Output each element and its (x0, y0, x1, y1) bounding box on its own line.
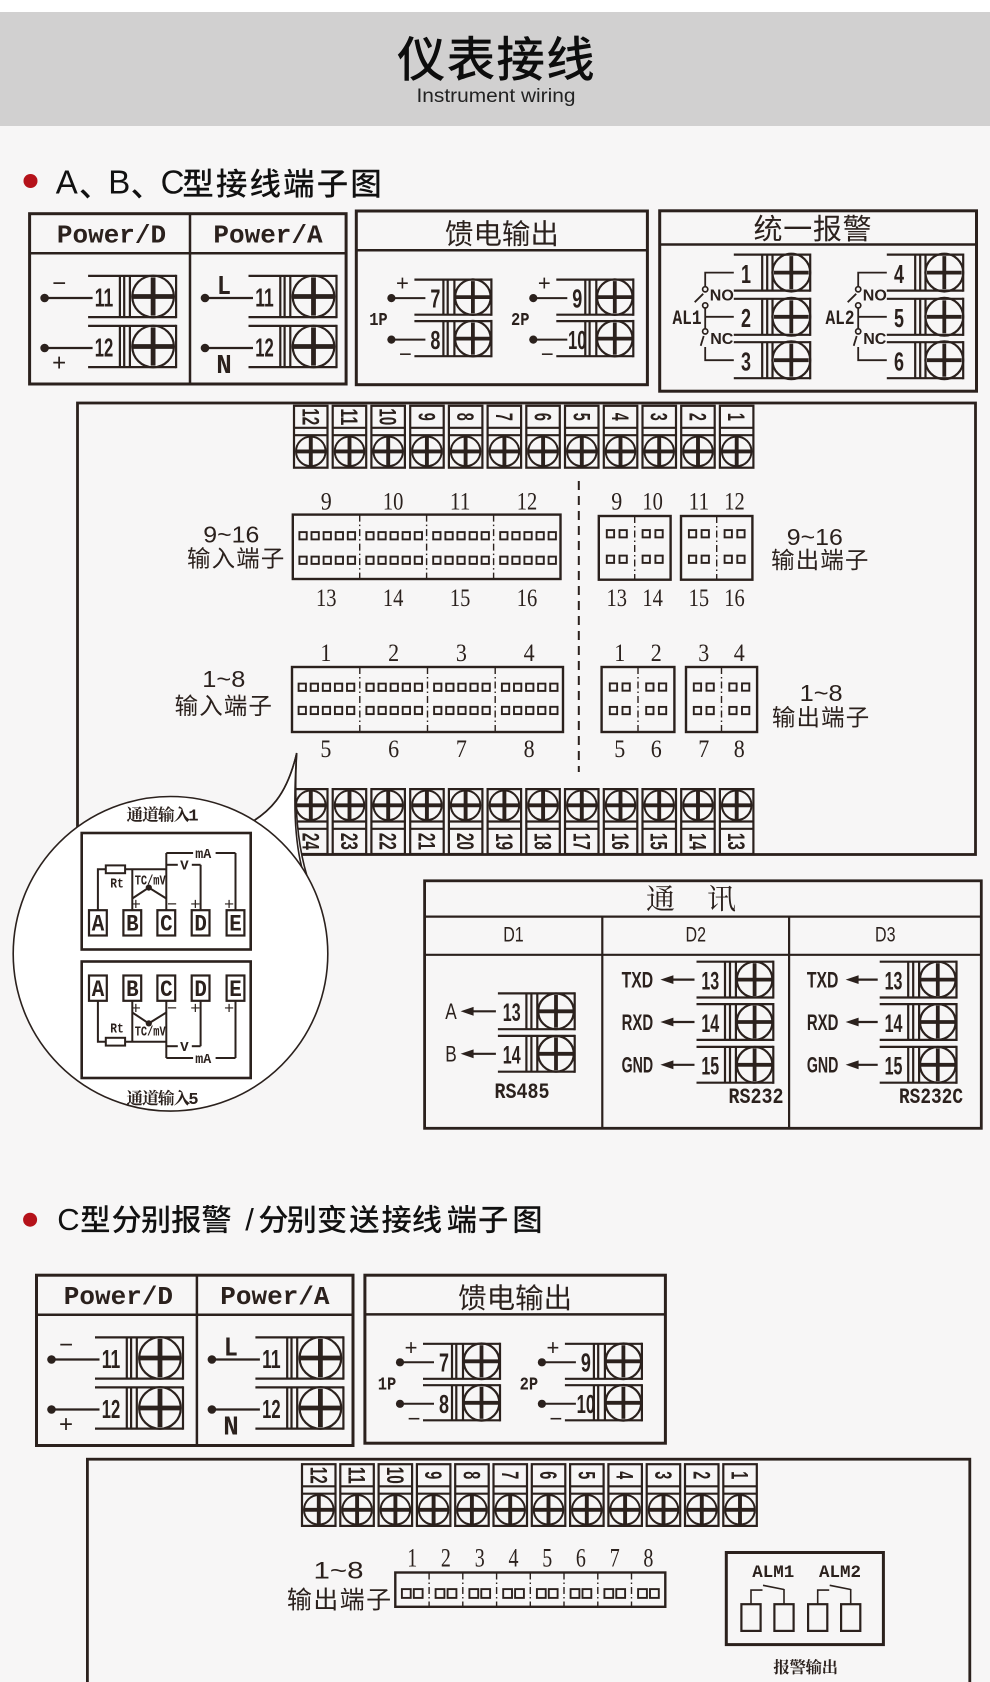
svg-text:15: 15 (450, 585, 471, 612)
svg-text:10: 10 (642, 488, 663, 515)
svg-text:8: 8 (451, 413, 478, 421)
svg-text:5: 5 (542, 1543, 552, 1572)
svg-text:2: 2 (388, 640, 399, 667)
svg-text:16: 16 (517, 585, 538, 612)
svg-text:3: 3 (649, 1471, 676, 1479)
svg-text:12: 12 (517, 488, 538, 515)
svg-text:4: 4 (606, 413, 633, 421)
svg-text:12: 12 (304, 1467, 331, 1484)
svg-text:11: 11 (689, 488, 710, 515)
svg-text:−: − (549, 1406, 562, 1431)
svg-text:TXD: TXD (807, 967, 839, 992)
svg-text:Rt: Rt (110, 1023, 124, 1038)
svg-text:12: 12 (262, 1394, 281, 1424)
svg-text:C: C (160, 912, 173, 938)
svg-text:10: 10 (374, 408, 401, 425)
svg-text:6: 6 (534, 1471, 561, 1479)
svg-text:1: 1 (188, 807, 198, 826)
svg-text:7: 7 (430, 283, 440, 313)
svg-text:6: 6 (388, 736, 399, 763)
svg-text:11: 11 (335, 408, 362, 425)
svg-text:−: − (167, 894, 177, 913)
svg-text:1P: 1P (369, 311, 388, 331)
svg-text:C: C (161, 163, 185, 200)
svg-text:8: 8 (458, 1471, 485, 1479)
svg-text:10: 10 (577, 1389, 596, 1419)
svg-text:11: 11 (262, 1344, 281, 1374)
svg-text:10: 10 (381, 1467, 408, 1484)
svg-text:4: 4 (611, 1471, 638, 1479)
svg-text:14: 14 (701, 1010, 719, 1038)
svg-text:C: C (57, 1202, 79, 1237)
svg-text:13: 13 (607, 585, 628, 612)
svg-text:15: 15 (645, 833, 672, 850)
svg-text:14: 14 (383, 585, 404, 612)
svg-text:V: V (180, 859, 189, 875)
svg-text:14: 14 (683, 833, 710, 850)
svg-text:NO: NO (863, 288, 887, 305)
svg-text:+: + (131, 894, 141, 913)
svg-text:Power/A: Power/A (213, 221, 323, 251)
svg-text:1P: 1P (378, 1375, 397, 1395)
svg-text:A: A (56, 163, 78, 200)
svg-text:12: 12 (255, 333, 274, 363)
svg-text:TC/mV: TC/mV (135, 1026, 167, 1041)
svg-text:−: − (59, 1331, 73, 1358)
svg-text:9: 9 (412, 413, 439, 421)
svg-text:1: 1 (320, 640, 331, 667)
svg-text:−: − (399, 342, 412, 367)
svg-text:12: 12 (102, 1394, 121, 1424)
svg-text:12: 12 (724, 488, 745, 515)
svg-text:10: 10 (383, 488, 404, 515)
svg-text:4: 4 (734, 640, 745, 667)
svg-text:2: 2 (683, 413, 710, 421)
svg-text:1: 1 (741, 259, 751, 289)
svg-text:13: 13 (722, 833, 749, 850)
svg-text:21: 21 (412, 833, 439, 850)
svg-text:15: 15 (701, 1053, 719, 1081)
svg-text:+: + (224, 998, 234, 1017)
svg-text:5: 5 (894, 303, 904, 333)
svg-text:+: + (131, 998, 141, 1017)
svg-text:9: 9 (581, 1348, 591, 1378)
svg-text:1: 1 (722, 413, 749, 421)
svg-text:1: 1 (614, 640, 625, 667)
svg-text:4: 4 (509, 1543, 519, 1572)
svg-text:7: 7 (456, 736, 467, 763)
svg-text:+: + (396, 271, 409, 296)
svg-text:9: 9 (611, 488, 622, 515)
svg-text:6: 6 (576, 1543, 586, 1572)
svg-text:15: 15 (885, 1053, 903, 1081)
svg-text:16: 16 (724, 585, 745, 612)
svg-text:A: A (445, 999, 457, 1024)
svg-text:9: 9 (572, 283, 582, 313)
svg-text:3: 3 (475, 1543, 485, 1572)
svg-text:+: + (538, 271, 551, 296)
svg-text:+: + (59, 1411, 73, 1438)
svg-text:19: 19 (490, 833, 517, 850)
svg-text:4: 4 (524, 640, 535, 667)
svg-text:RS232C: RS232C (899, 1085, 963, 1110)
svg-text:14: 14 (503, 1042, 521, 1070)
svg-text:L: L (224, 1334, 238, 1364)
svg-text:A: A (92, 977, 105, 1003)
svg-text:+: + (546, 1335, 559, 1360)
svg-text:9: 9 (321, 488, 332, 515)
svg-text:5: 5 (320, 736, 331, 763)
svg-text:−: − (408, 1406, 421, 1431)
svg-text:5: 5 (572, 1471, 599, 1479)
svg-text:7: 7 (610, 1543, 620, 1572)
svg-text:RS232: RS232 (729, 1085, 784, 1110)
svg-text:22: 22 (374, 833, 401, 850)
svg-text:10: 10 (568, 325, 587, 355)
svg-text:2: 2 (687, 1471, 714, 1479)
svg-text:3: 3 (456, 640, 467, 667)
svg-text:8: 8 (643, 1543, 653, 1572)
svg-text:17: 17 (567, 833, 594, 850)
svg-text:NC: NC (863, 331, 887, 348)
svg-text:D: D (194, 912, 207, 938)
svg-text:+: + (224, 894, 234, 913)
svg-text:1: 1 (407, 1543, 417, 1572)
svg-text:11: 11 (343, 1467, 370, 1484)
svg-text:−: − (167, 998, 177, 1017)
svg-text:14: 14 (885, 1010, 903, 1038)
svg-text:6: 6 (529, 413, 556, 421)
svg-text:8: 8 (430, 325, 440, 355)
svg-text:1~8: 1~8 (800, 680, 843, 706)
svg-text:12: 12 (95, 333, 114, 363)
svg-text:11: 11 (450, 488, 471, 515)
svg-text:TXD: TXD (622, 967, 654, 992)
svg-text:Power/D: Power/D (64, 1282, 173, 1312)
svg-text:11: 11 (102, 1344, 121, 1374)
svg-text:3: 3 (698, 640, 709, 667)
svg-text:RXD: RXD (622, 1010, 654, 1035)
svg-text:E: E (229, 912, 242, 938)
svg-text:N: N (223, 1413, 239, 1443)
svg-text:GND: GND (807, 1053, 839, 1078)
svg-text:13: 13 (701, 967, 719, 995)
svg-text:3: 3 (741, 346, 751, 376)
svg-text:1~8: 1~8 (202, 666, 245, 692)
svg-text:5: 5 (188, 1091, 198, 1110)
svg-text:D3: D3 (875, 924, 896, 947)
svg-text:ALM2: ALM2 (819, 1563, 861, 1583)
svg-text:RS485: RS485 (495, 1080, 550, 1105)
svg-text:16: 16 (606, 833, 633, 850)
svg-text:7: 7 (698, 736, 709, 763)
svg-text:7: 7 (439, 1348, 449, 1378)
svg-text:+: + (405, 1335, 418, 1360)
svg-text:L: L (217, 273, 231, 303)
svg-text:NO: NO (710, 288, 734, 305)
svg-text:TC/mV: TC/mV (135, 875, 167, 890)
svg-text:+: + (52, 349, 66, 376)
svg-text:+: + (190, 894, 200, 913)
svg-text:5: 5 (567, 413, 594, 421)
svg-text:V: V (180, 1040, 189, 1056)
svg-text:23: 23 (335, 833, 362, 850)
svg-text:Instrument wiring: Instrument wiring (417, 85, 576, 107)
svg-text:D1: D1 (503, 924, 524, 947)
svg-text:Power/D: Power/D (57, 221, 166, 251)
svg-text:15: 15 (689, 585, 710, 612)
svg-text:Rt: Rt (110, 878, 124, 893)
svg-text:9~16: 9~16 (203, 521, 259, 547)
svg-text:9~16: 9~16 (787, 524, 843, 550)
svg-text:8: 8 (524, 736, 535, 763)
svg-text:2P: 2P (511, 311, 530, 331)
svg-text:D2: D2 (686, 924, 707, 947)
svg-text:+: + (190, 998, 200, 1017)
svg-text:20: 20 (451, 833, 478, 850)
svg-text:−: − (52, 270, 66, 297)
svg-text:6: 6 (651, 736, 662, 763)
svg-text:9: 9 (419, 1471, 446, 1479)
svg-text:13: 13 (885, 967, 903, 995)
svg-text:mA: mA (195, 847, 212, 863)
svg-text:Power/A: Power/A (220, 1282, 330, 1312)
svg-text:B: B (445, 1042, 457, 1067)
svg-text:7: 7 (496, 1471, 523, 1479)
svg-text:1: 1 (726, 1471, 753, 1479)
svg-text:AL2: AL2 (826, 308, 855, 331)
svg-text:mA: mA (195, 1052, 212, 1068)
svg-text:18: 18 (529, 833, 556, 850)
svg-text:N: N (216, 352, 232, 382)
svg-text:7: 7 (490, 413, 517, 421)
svg-text:GND: GND (622, 1053, 654, 1078)
svg-text:14: 14 (642, 585, 663, 612)
svg-text:A: A (92, 912, 105, 938)
svg-text:2: 2 (441, 1543, 451, 1572)
svg-text:8: 8 (734, 736, 745, 763)
svg-text:11: 11 (255, 283, 274, 313)
svg-text:4: 4 (894, 259, 904, 289)
svg-text:/: / (245, 1202, 254, 1237)
svg-text:6: 6 (894, 346, 904, 376)
svg-text:13: 13 (316, 585, 337, 612)
svg-text:NC: NC (710, 331, 734, 348)
svg-text:B: B (126, 912, 139, 938)
svg-text:AL1: AL1 (673, 308, 702, 331)
svg-text:ALM1: ALM1 (752, 1563, 794, 1583)
svg-text:1~8: 1~8 (314, 1557, 364, 1584)
svg-text:13: 13 (503, 999, 521, 1027)
svg-text:2: 2 (651, 640, 662, 667)
svg-text:11: 11 (95, 283, 114, 313)
svg-text:5: 5 (614, 736, 625, 763)
svg-text:2: 2 (741, 303, 751, 333)
svg-text:RXD: RXD (807, 1010, 839, 1035)
svg-text:−: − (541, 342, 554, 367)
svg-text:12: 12 (296, 408, 323, 425)
svg-text:2P: 2P (520, 1375, 539, 1395)
svg-text:3: 3 (645, 413, 672, 421)
svg-text:B: B (108, 163, 130, 200)
svg-text:8: 8 (439, 1389, 449, 1419)
